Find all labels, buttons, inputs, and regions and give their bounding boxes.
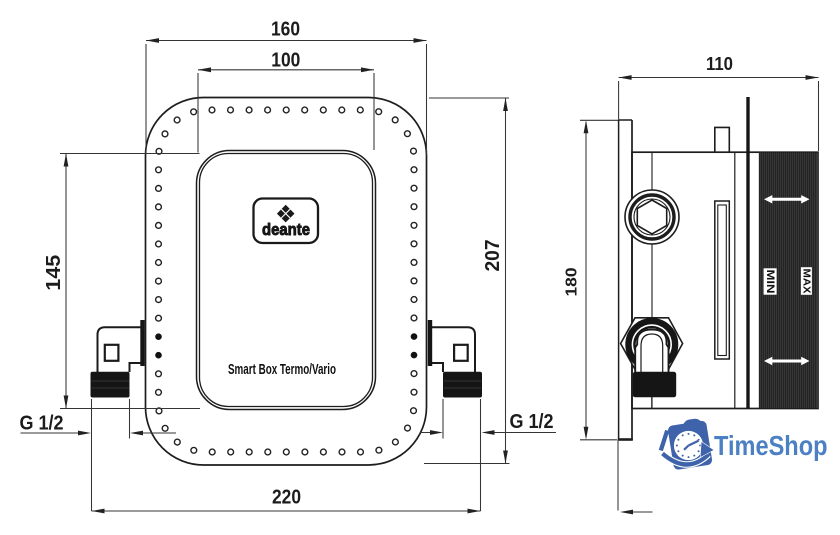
svg-text:G 1/2: G 1/2 [510, 411, 554, 433]
svg-text:220: 220 [272, 487, 301, 509]
svg-text:MAX: MAX [800, 269, 812, 294]
svg-text:deante: deante [262, 221, 310, 239]
svg-text:110: 110 [706, 53, 733, 74]
svg-text:145: 145 [43, 255, 65, 291]
svg-text:Smart Box Termo/Vario: Smart Box Termo/Vario [228, 362, 336, 378]
svg-text:180: 180 [564, 268, 581, 297]
svg-text:160: 160 [271, 18, 300, 40]
svg-text:207: 207 [482, 240, 504, 272]
svg-text:100: 100 [271, 50, 300, 72]
svg-text:G 1/2: G 1/2 [20, 413, 64, 435]
svg-text:TimeShop: TimeShop [714, 430, 828, 461]
svg-text:MIN: MIN [764, 270, 776, 294]
